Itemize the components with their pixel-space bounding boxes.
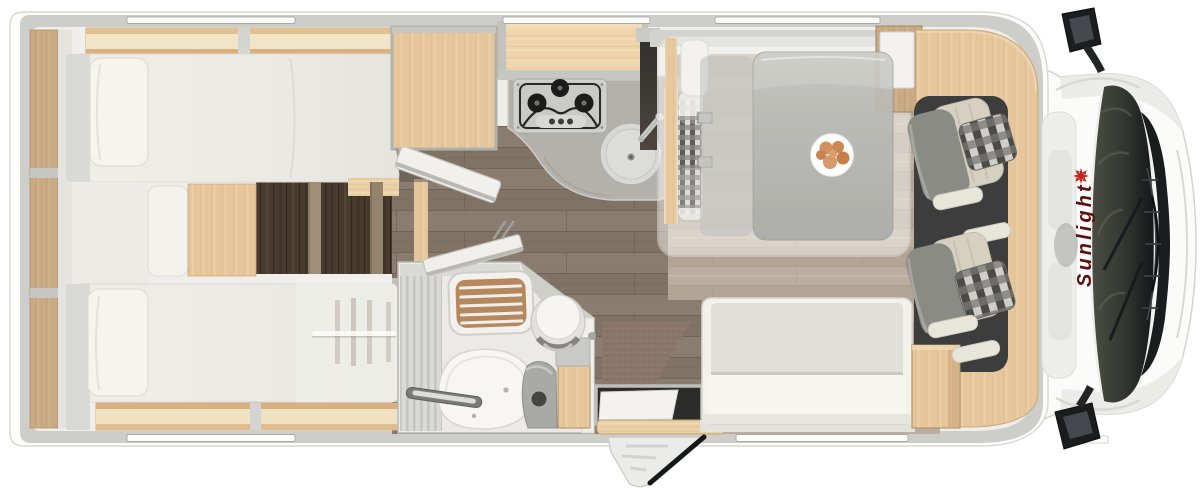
svg-text:Sunlight: Sunlight xyxy=(1074,182,1096,287)
